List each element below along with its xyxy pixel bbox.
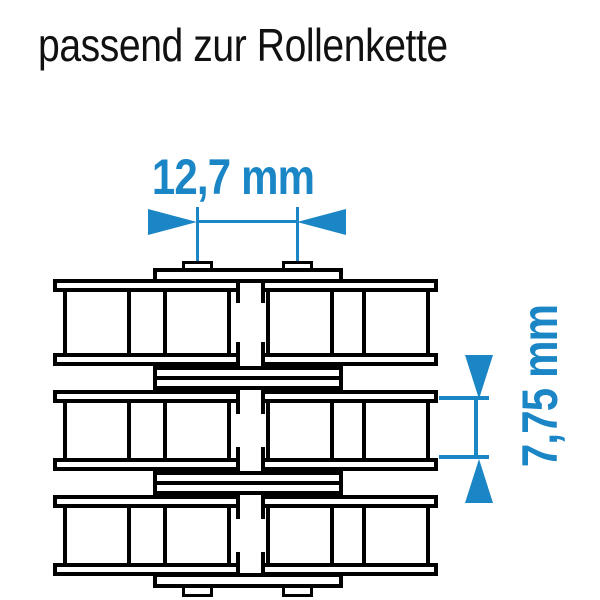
roller <box>362 504 430 567</box>
center-gap-notch <box>261 403 265 414</box>
roller-chain-diagram: passend zur Rollenkette 12,7 mm 7,75 mm <box>0 0 600 600</box>
roller <box>266 288 334 357</box>
center-gap-notch <box>261 342 265 353</box>
roller <box>63 399 131 462</box>
center-gap-notch <box>236 403 240 414</box>
connector-plate-midline <box>153 376 343 380</box>
center-gap-notch <box>261 508 265 519</box>
center-gap-notch <box>236 552 240 563</box>
roller <box>362 288 430 357</box>
center-gap-notch <box>236 292 240 303</box>
roller <box>266 399 334 462</box>
roller <box>362 399 430 462</box>
roller <box>163 504 231 567</box>
connector-plate-midline <box>153 481 343 485</box>
center-gap-notch <box>261 292 265 303</box>
center-gap-notch <box>236 342 240 353</box>
chain-drawing <box>0 0 600 600</box>
connector-plate <box>153 471 343 495</box>
center-gap-notch <box>236 447 240 458</box>
center-gap-notch <box>261 447 265 458</box>
roller <box>266 504 334 567</box>
roller <box>63 288 131 357</box>
roller <box>63 504 131 567</box>
roller <box>163 288 231 357</box>
center-gap-notch <box>236 508 240 519</box>
roller <box>163 399 231 462</box>
connector-plate <box>153 366 343 390</box>
center-gap-notch <box>261 552 265 563</box>
